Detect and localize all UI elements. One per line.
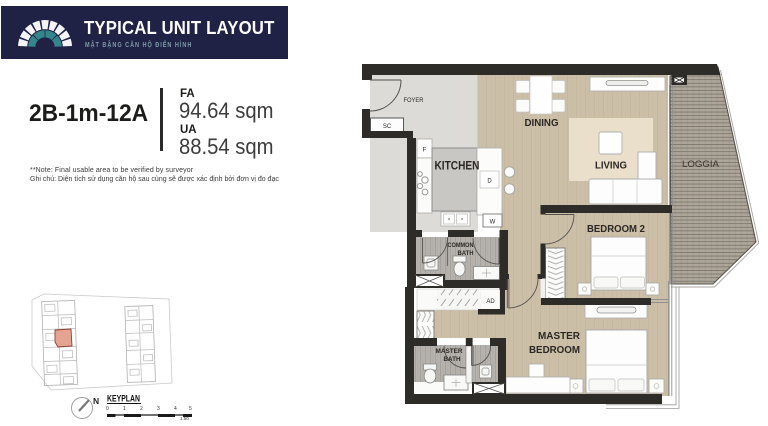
svg-text:AD: AD (486, 299, 495, 305)
svg-text:DINING: DINING (525, 117, 559, 129)
svg-text:MASTER: MASTER (436, 349, 464, 355)
svg-text:LIVING: LIVING (595, 160, 627, 172)
svg-text:COMMON: COMMON (448, 243, 474, 249)
svg-text:F: F (423, 148, 427, 154)
svg-text:BATH: BATH (444, 357, 461, 363)
svg-text:KITCHEN: KITCHEN (435, 161, 480, 173)
svg-text:LOGGIA: LOGGIA (682, 159, 720, 170)
svg-text:W: W (490, 220, 496, 226)
svg-text:BEDROOM 2: BEDROOM 2 (587, 224, 645, 235)
svg-text:D: D (487, 179, 492, 185)
svg-text:SC: SC (383, 124, 392, 130)
svg-text:FOYER: FOYER (404, 97, 424, 104)
svg-text:BEDROOM: BEDROOM (529, 345, 580, 356)
svg-text:MASTER: MASTER (538, 331, 581, 342)
svg-text:BATH: BATH (458, 251, 474, 257)
